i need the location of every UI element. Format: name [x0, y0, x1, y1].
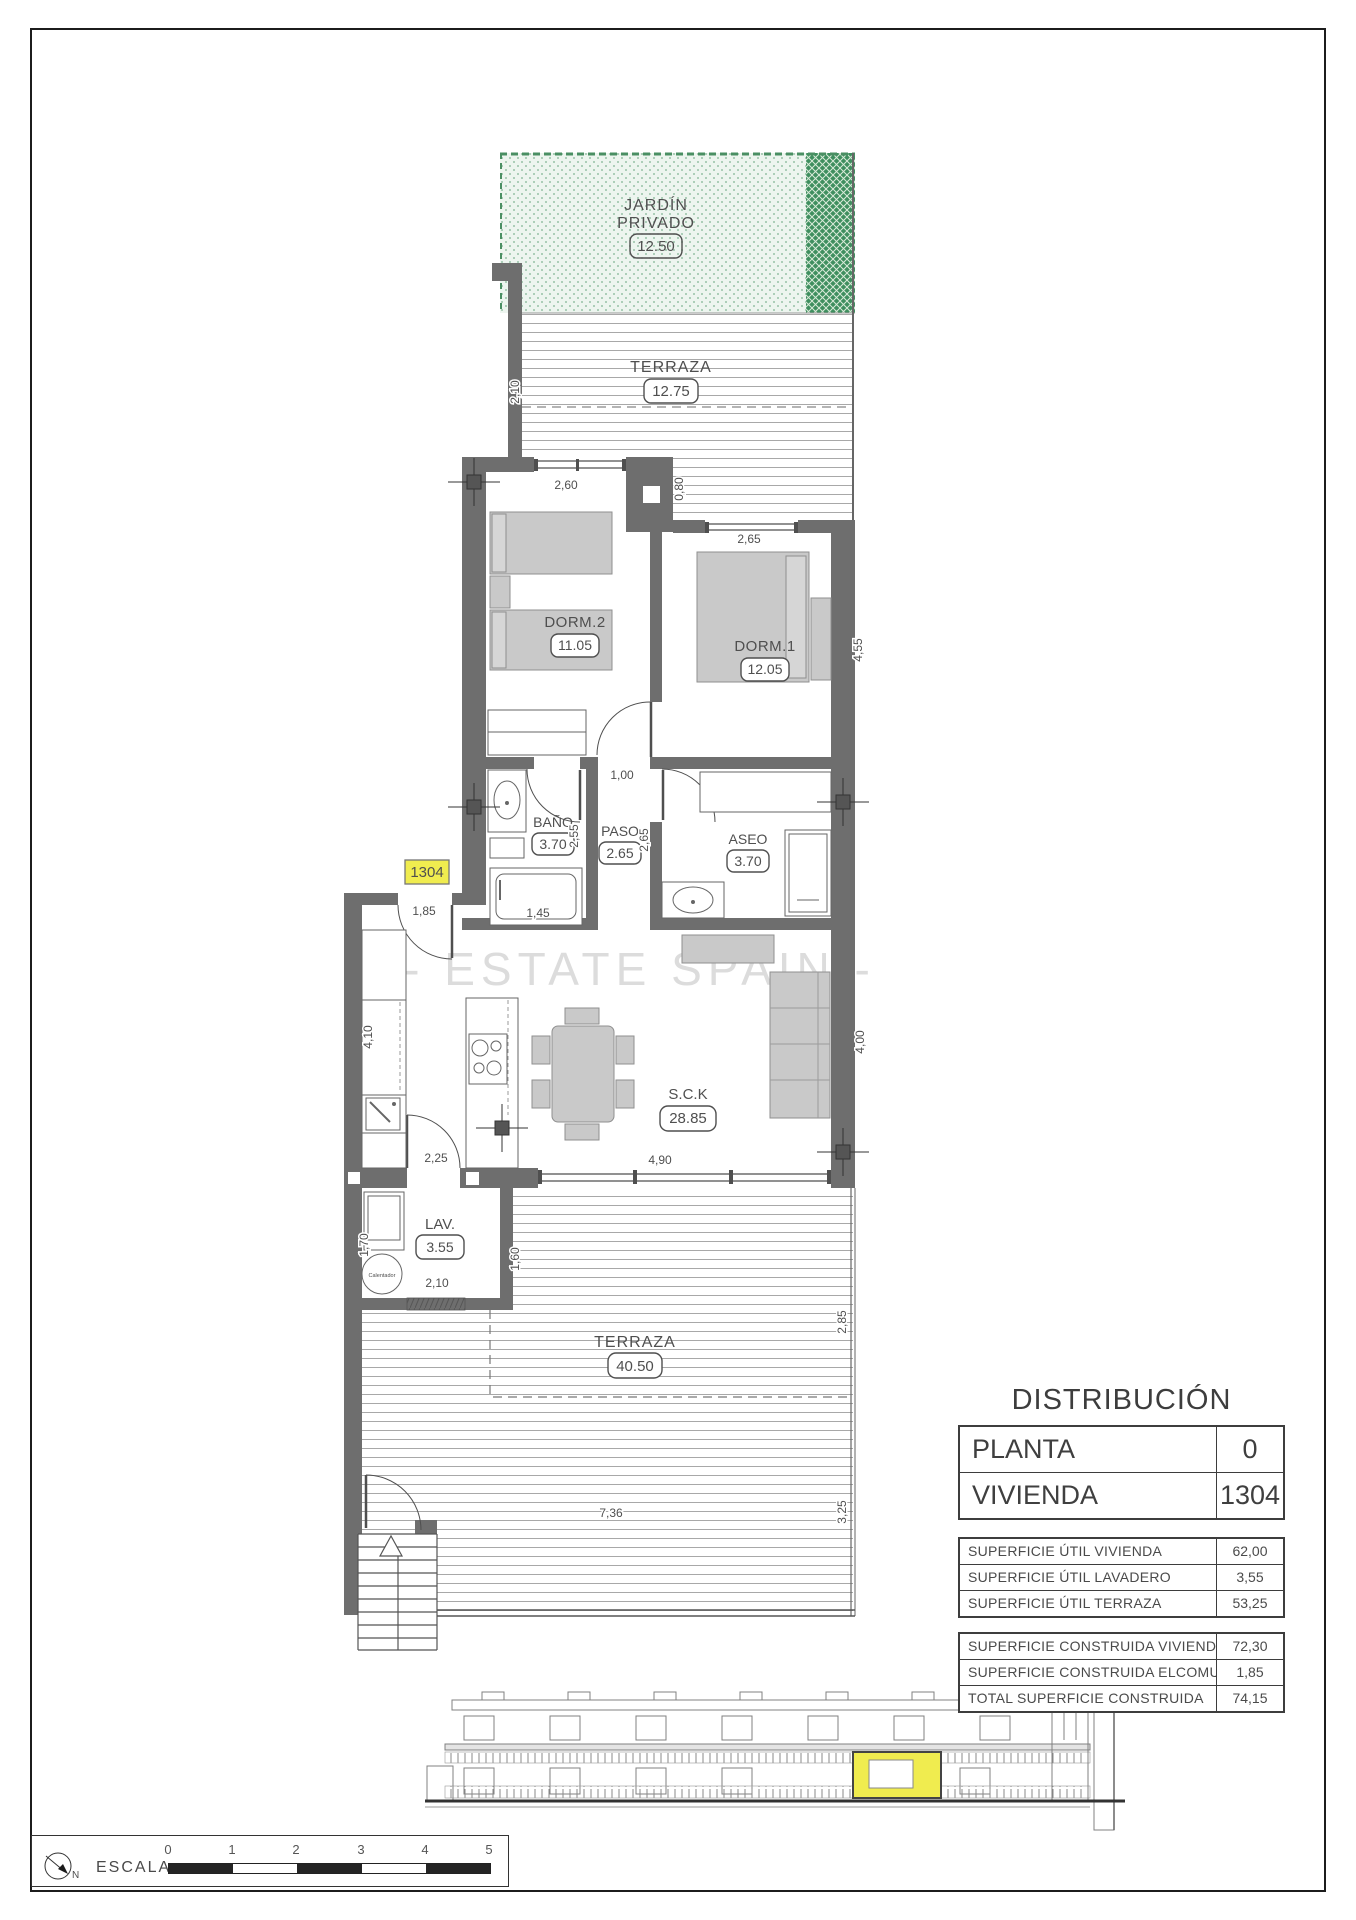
north-label: N [72, 1870, 79, 1881]
scale-tick: 2 [289, 1842, 303, 1857]
table-row: SUPERFICIE ÚTIL VIVIENDA 62,00 [960, 1539, 1283, 1564]
planta-value: 0 [1216, 1427, 1283, 1472]
table-row: SUPERFICIE CONSTRUIDA ELCOMUNES 1,85 [960, 1659, 1283, 1685]
table-row: SUPERFICIE ÚTIL LAVADERO 3,55 [960, 1564, 1283, 1590]
planta-label: PLANTA [960, 1427, 1216, 1472]
useful-surface-table: SUPERFICIE ÚTIL VIVIENDA 62,00 SUPERFICI… [958, 1537, 1285, 1618]
table-row: TOTAL SUPERFICIE CONSTRUIDA 74,15 [960, 1685, 1283, 1711]
distribution-title: DISTRIBUCIÓN [958, 1384, 1285, 1417]
scale-tick: 5 [482, 1842, 496, 1857]
scale-tick: 4 [418, 1842, 432, 1857]
table-row: VIVIENDA 1304 [960, 1472, 1283, 1518]
table-row: SUPERFICIE ÚTIL TERRAZA 53,25 [960, 1590, 1283, 1616]
unit-table: PLANTA 0 VIVIENDA 1304 [958, 1425, 1285, 1520]
floorplan-page: { "plan": { "watermark": "- ESTATE SPAIN… [0, 0, 1356, 1920]
built-surface-table: SUPERFICIE CONSTRUIDA VIVIENDA 72,30 SUP… [958, 1632, 1285, 1713]
scale-tick: 3 [354, 1842, 368, 1857]
scale-bar [168, 1863, 491, 1874]
vivienda-value: 1304 [1216, 1473, 1283, 1518]
north-arrow-icon: N [38, 1840, 94, 1888]
scale-tick: 0 [161, 1842, 175, 1857]
table-row: SUPERFICIE CONSTRUIDA VIVIENDA 72,30 [960, 1634, 1283, 1659]
vivienda-label: VIVIENDA [960, 1473, 1216, 1518]
scale-legend-box: N ESCALA : 0 1 2 3 4 5 [31, 1835, 509, 1887]
table-row: PLANTA 0 [960, 1427, 1283, 1472]
scale-tick: 1 [225, 1842, 239, 1857]
